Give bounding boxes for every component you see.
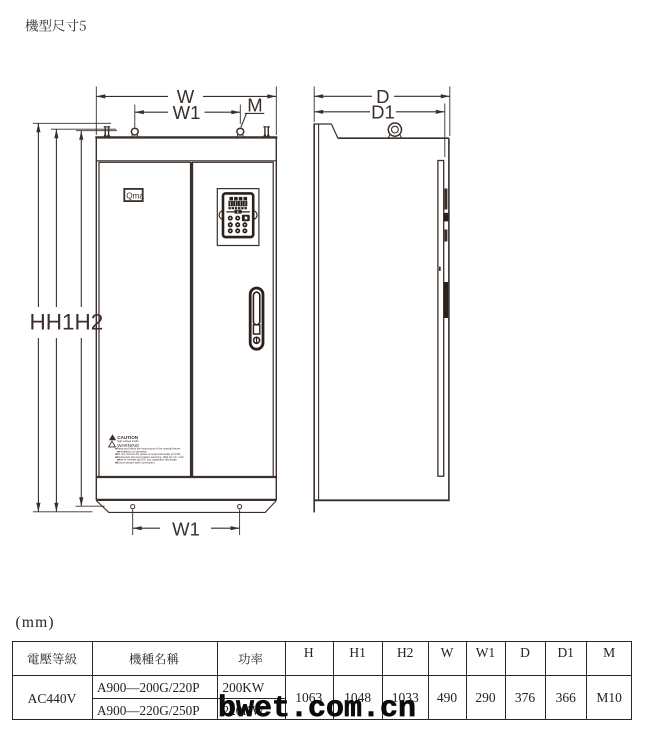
svg-text:■Ensure proper earth connectio: ■Ensure proper earth connection. — [115, 461, 155, 465]
svg-text:HH1H2: HH1H2 — [30, 310, 104, 335]
svg-text:W1: W1 — [172, 518, 200, 539]
svg-text:D1: D1 — [371, 102, 395, 123]
svg-text:M: M — [247, 95, 262, 116]
svg-text:W1: W1 — [173, 102, 201, 123]
svg-text:Qma: Qma — [126, 192, 144, 201]
